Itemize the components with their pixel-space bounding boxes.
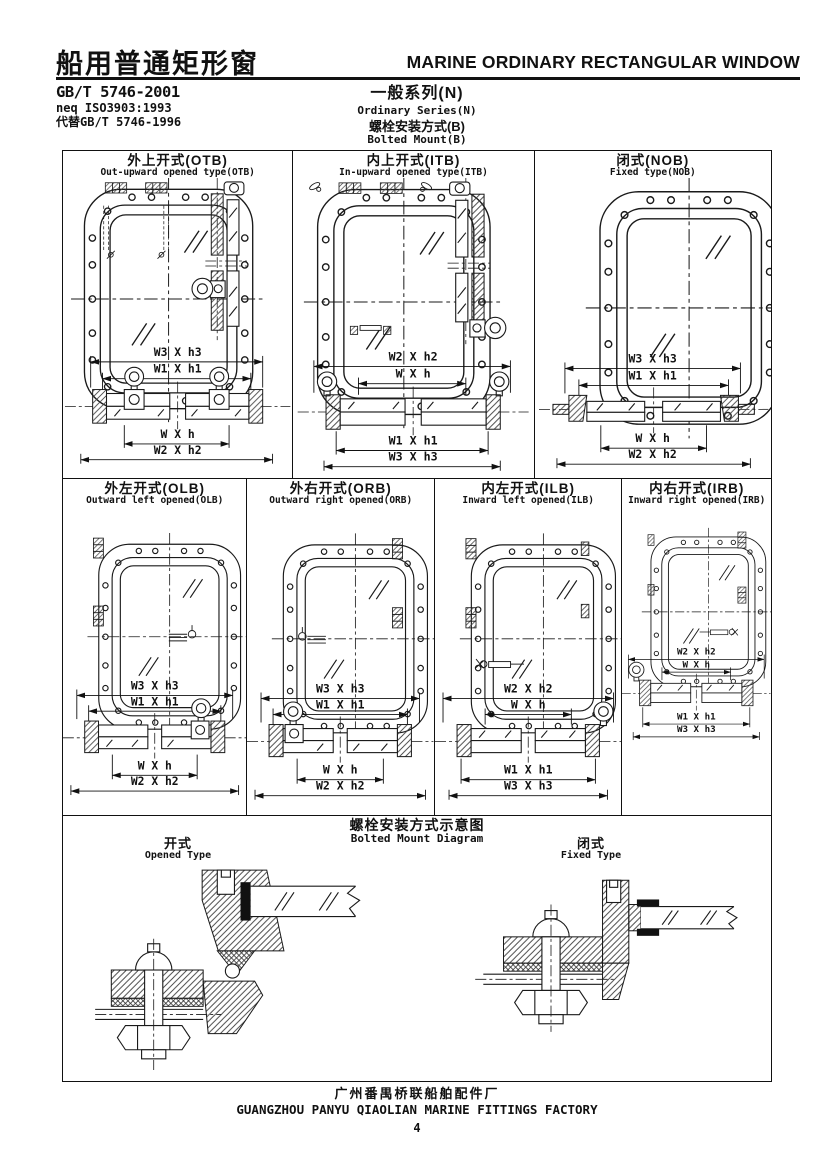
- drawing-olb: W3 X h3 W1 X h1: [63, 506, 246, 815]
- row-side-types: 外左开式(OLB) Outward left opened(OLB): [63, 479, 771, 816]
- dim-label: W2 X h2: [389, 349, 438, 363]
- cell-ilb: 内左开式(ILB) Inward left opened(ILB): [435, 479, 622, 815]
- dim-label: W3 X h3: [389, 450, 438, 464]
- opened-type-label: 开式 Opened Type: [118, 837, 238, 861]
- cell-ilb-title-cn: 内左开式(ILB): [435, 482, 621, 496]
- wing-nut-left: [309, 181, 321, 191]
- dim-label: W2 X h2: [154, 443, 202, 457]
- dim-label: W X h: [138, 759, 172, 773]
- factory-name-en: GUANGZHOU PANYU QIAOLIAN MARINE FITTINGS…: [62, 1102, 772, 1117]
- cell-itb-title-cn: 内上开式(ITB): [293, 154, 533, 168]
- cell-nob-title: 闭式(NOB) Fixed type(NOB): [535, 151, 771, 178]
- section-opened: [95, 870, 359, 1070]
- page-title-cn: 船用普通矩形窗: [56, 42, 259, 81]
- cell-otb-title: 外上开式(OTB) Out-upward opened type(OTB): [63, 151, 292, 178]
- drawing-sheet: 外上开式(OTB) Out-upward opened type(OTB): [62, 150, 772, 1082]
- document-page: 船用普通矩形窗 MARINE ORDINARY RECTANGULAR WIND…: [0, 0, 830, 1175]
- fixed-type-label: 闭式 Fixed Type: [531, 837, 651, 861]
- cell-nob-title-en: Fixed type(NOB): [535, 168, 771, 178]
- dim-label: W X h: [511, 698, 546, 712]
- factory-name-cn: 广州番禺桥联船舶配件厂: [62, 1086, 772, 1102]
- dim-bottom-2: W2 X h2: [256, 779, 426, 800]
- dim-label: W1 X h1: [154, 362, 202, 376]
- dim-label: W1 X h1: [504, 763, 553, 777]
- cell-olb-title: 外左开式(OLB) Outward left opened(OLB): [63, 479, 246, 506]
- dim-label: W X h: [683, 659, 711, 670]
- fixed-type-label-cn: 闭式: [531, 837, 651, 851]
- dim-label: W1 X h1: [677, 711, 716, 722]
- series-title-cn: 一般系列(N): [62, 85, 772, 103]
- dim-label: W3 X h3: [628, 352, 676, 366]
- dim-label: W2 X h2: [677, 647, 716, 658]
- dim-label: W3 X h3: [131, 679, 179, 693]
- fixed-type-label-en: Fixed Type: [531, 851, 651, 862]
- cell-irb-title-en: Inward right opened(IRB): [622, 496, 771, 506]
- opened-type-label-cn: 开式: [118, 837, 238, 851]
- dim-label: W3 X h3: [677, 724, 716, 735]
- page-title-en: MARINE ORDINARY RECTANGULAR WINDOW: [407, 52, 800, 73]
- dim-label: W3 X h3: [316, 682, 365, 696]
- dim-label: W X h: [161, 427, 195, 441]
- dim-label: W1 X h1: [389, 434, 438, 448]
- dim-label: W3 X h3: [504, 779, 553, 793]
- dim-label: W1 X h1: [316, 698, 365, 712]
- cell-nob: 闭式(NOB) Fixed type(NOB) W3 X h3 W1 X h1: [535, 151, 771, 478]
- row-top-types: 外上开式(OTB) Out-upward opened type(OTB): [63, 151, 771, 479]
- fixed-type-section-drawing: [455, 866, 743, 1036]
- cell-otb-title-cn: 外上开式(OTB): [63, 154, 292, 168]
- dim-bottom-2: W3 X h3: [324, 450, 500, 471]
- cell-irb-title-cn: 内右开式(IRB): [622, 482, 771, 496]
- drawing-itb: W2 X h2 W X h: [293, 178, 533, 478]
- opened-type-label-en: Opened Type: [118, 851, 238, 862]
- cell-orb-title-en: Outward right opened(ORB): [247, 496, 433, 506]
- cell-orb-title-cn: 外右开式(ORB): [247, 482, 433, 496]
- opened-type-section-drawing: [95, 862, 383, 1076]
- dim-label: W2 X h2: [131, 774, 179, 788]
- drawing-orb: W3 X h3 W1 X h1: [247, 506, 433, 815]
- dim-label: W1 X h1: [628, 369, 676, 383]
- cell-olb-title-cn: 外左开式(OLB): [63, 482, 246, 496]
- drawing-irb: W2 X h2 W X h: [622, 506, 771, 815]
- dim-label: W2 X h2: [628, 447, 676, 461]
- dim-label: W X h: [396, 367, 431, 381]
- dim-bottom-2: W2 X h2: [81, 443, 273, 464]
- cell-ilb-title: 内左开式(ILB) Inward left opened(ILB): [435, 479, 621, 506]
- mount-diagram-title-cn: 螺栓安装方式示意图: [63, 818, 771, 833]
- series-block: 一般系列(N) Ordinary Series(N) 螺栓安装方式(B) Bol…: [62, 85, 772, 146]
- dim-label: W3 X h3: [154, 345, 202, 359]
- dim-label: W X h: [635, 431, 669, 445]
- drawing-ilb: W2 X h2 W X h: [435, 506, 621, 815]
- mount-title-cn: 螺栓安装方式(B): [62, 120, 772, 134]
- page-number: 4: [62, 1121, 772, 1135]
- cell-otb: 外上开式(OTB) Out-upward opened type(OTB): [63, 151, 293, 478]
- cell-irb-title: 内右开式(IRB) Inward right opened(IRB): [622, 479, 771, 506]
- cell-itb-title-en: In-upward opened type(ITB): [293, 168, 533, 178]
- cell-nob-title-cn: 闭式(NOB): [535, 154, 771, 168]
- dim-label: W X h: [323, 763, 358, 777]
- dim-label: W2 X h2: [504, 682, 553, 696]
- dim-bottom-2: W2 X h2: [557, 447, 750, 468]
- mount-title-en: Bolted Mount(B): [62, 134, 772, 146]
- cell-orb-title: 外右开式(ORB) Outward right opened(ORB): [247, 479, 433, 506]
- cell-irb: 内右开式(IRB) Inward right opened(IRB): [622, 479, 771, 815]
- cell-itb-title: 内上开式(ITB) In-upward opened type(ITB): [293, 151, 533, 178]
- series-title-en: Ordinary Series(N): [62, 105, 772, 117]
- header-rule: [56, 77, 800, 80]
- cell-ilb-title-en: Inward left opened(ILB): [435, 496, 621, 506]
- dim-label: W2 X h2: [316, 779, 365, 793]
- cell-otb-title-en: Out-upward opened type(OTB): [63, 168, 292, 178]
- cell-itb: 内上开式(ITB) In-upward opened type(ITB): [293, 151, 534, 478]
- dim-label: W1 X h1: [131, 694, 179, 708]
- drawing-otb: W3 X h3 W1 X h1: [63, 178, 292, 478]
- cell-olb: 外左开式(OLB) Outward left opened(OLB): [63, 479, 247, 815]
- window-front-view: [585, 178, 771, 438]
- mount-diagram-section: 螺栓安装方式示意图 Bolted Mount Diagram 开式 Opened…: [63, 816, 771, 1078]
- section-fixed: [475, 880, 737, 1032]
- window-front-view: [642, 528, 771, 696]
- window-front-view: [87, 533, 246, 741]
- drawing-nob: W3 X h3 W1 X h1: [535, 178, 771, 478]
- dim-bottom-2: W3 X h3: [449, 779, 607, 800]
- dim-bottom-2: W3 X h3: [634, 724, 760, 740]
- footer: 广州番禺桥联船舶配件厂 GUANGZHOU PANYU QIAOLIAN MAR…: [62, 1086, 772, 1135]
- cell-orb: 外右开式(ORB) Outward right opened(ORB): [247, 479, 434, 815]
- dim-bottom-2: W2 X h2: [71, 774, 239, 795]
- cell-olb-title-en: Outward left opened(OLB): [63, 496, 246, 506]
